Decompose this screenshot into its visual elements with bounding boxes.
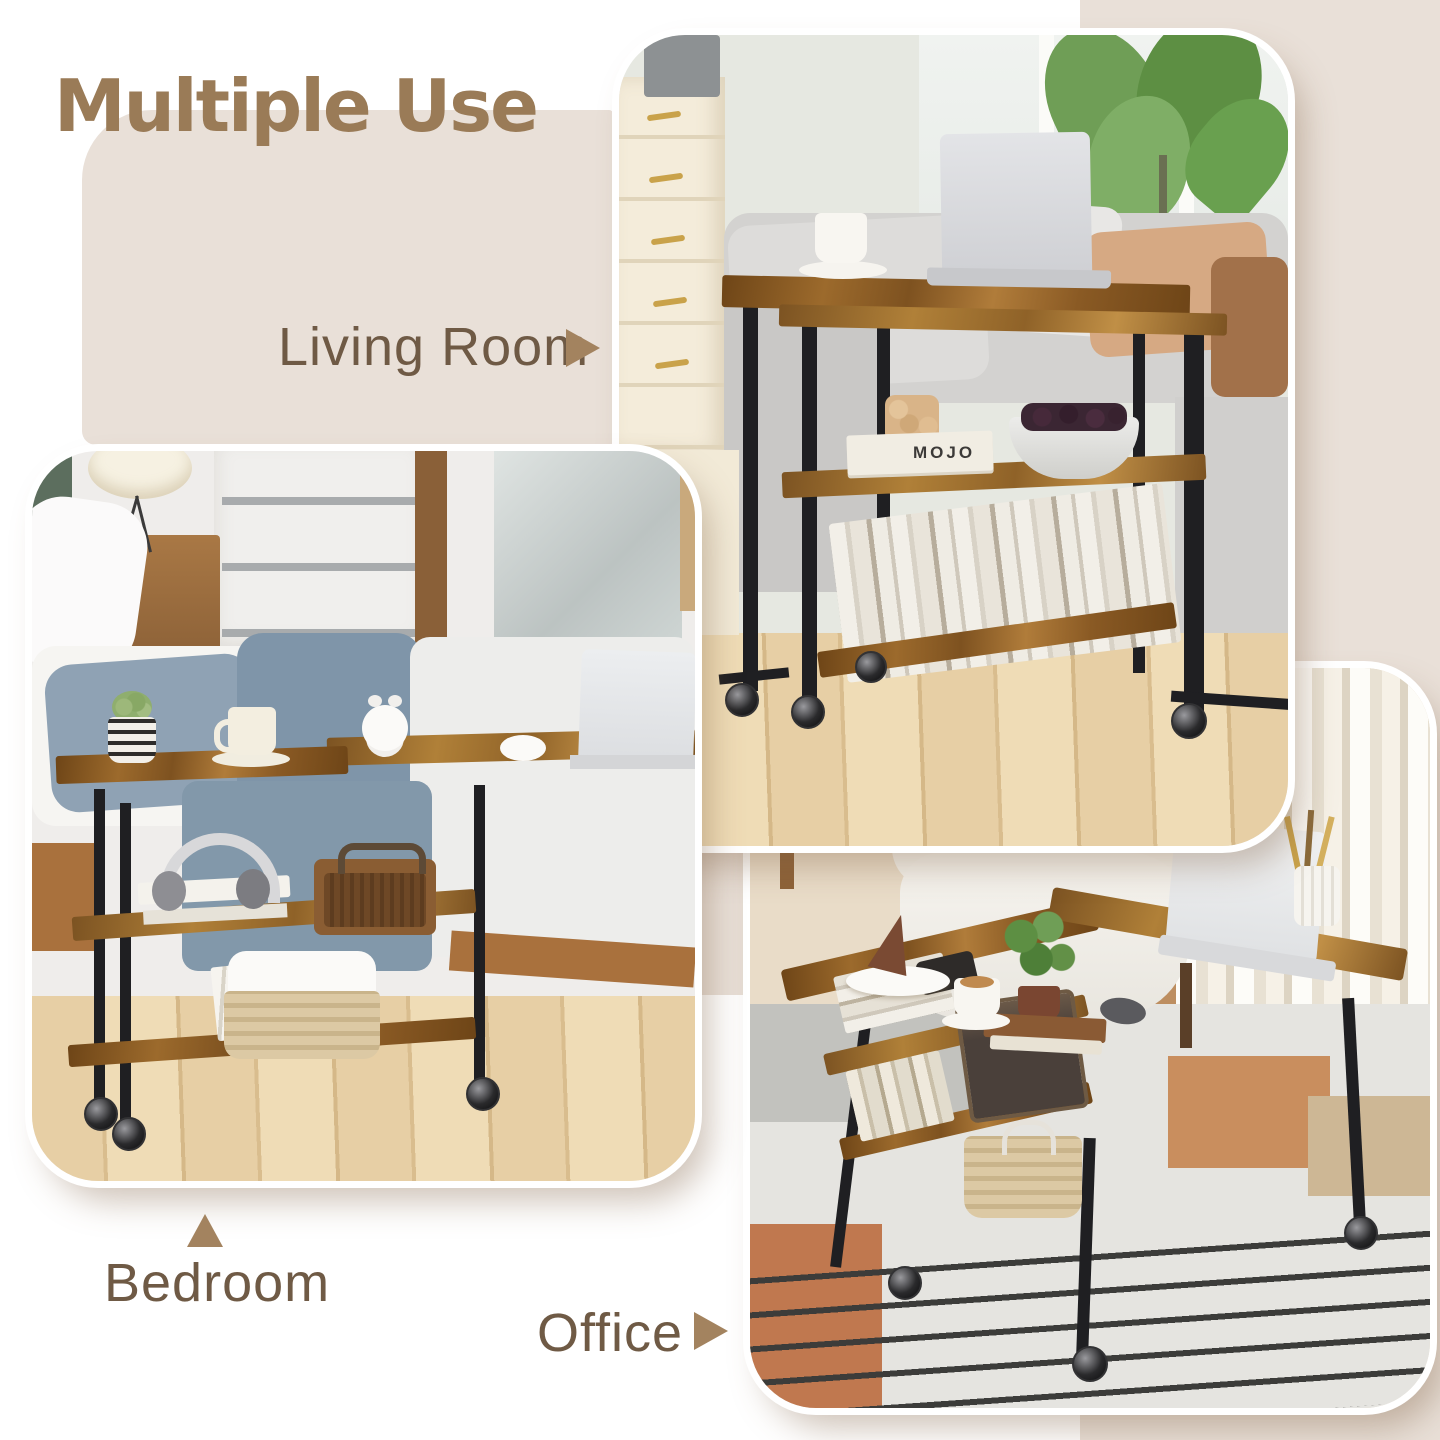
br-caster-wheel <box>466 1077 500 1111</box>
lr-saucer <box>799 261 887 279</box>
br-lamp-shade <box>88 451 192 499</box>
of-caster-wheel <box>888 1266 922 1300</box>
br-caster-wheel <box>112 1117 146 1151</box>
br-radio-handle <box>338 843 426 874</box>
label-bedroom: Bedroom <box>104 1252 330 1314</box>
of-desk-rear-leg <box>1180 963 1192 1048</box>
br-mug-handle <box>214 719 240 753</box>
of-caster-wheel <box>1072 1346 1108 1382</box>
lr-table-leg <box>802 313 817 701</box>
lr-laptop-screen <box>940 132 1092 277</box>
br-striped-planter <box>108 717 156 763</box>
lr-caster-wheel <box>791 695 825 729</box>
br-mirror <box>494 451 682 649</box>
arrow-up-icon-bedroom <box>187 1214 223 1247</box>
lr-mojo-book-title: MOJO <box>913 443 975 463</box>
br-alarm-bell <box>388 695 402 707</box>
of-latte-top <box>960 976 994 988</box>
of-caster-wheel <box>1344 1216 1378 1250</box>
br-alarm-bell <box>368 695 382 707</box>
br-mouse <box>500 735 546 761</box>
br-alarm-clock <box>362 705 408 751</box>
of-pencil-cup <box>1294 866 1340 926</box>
living-room-photo-panel: MOJO <box>619 35 1288 846</box>
bedroom-photo <box>32 451 695 1181</box>
br-white-cabinet <box>214 451 426 656</box>
lr-caster-wheel <box>1171 703 1207 739</box>
br-laptop-screen <box>578 649 695 763</box>
page-title: Multiple Use <box>54 64 537 148</box>
product-collage: Multiple Use <box>0 0 1440 1440</box>
br-mirror-frame <box>680 451 695 611</box>
of-plant-leaves <box>996 904 1080 996</box>
br-headphones-earcup <box>152 871 186 911</box>
br-basket <box>224 991 380 1059</box>
lr-coffee-cup <box>815 213 867 263</box>
label-living-room: Living Room <box>278 316 589 378</box>
lr-storage-box <box>644 35 720 97</box>
arrow-right-icon-office <box>694 1312 728 1350</box>
arrow-right-icon-living-room <box>566 329 600 367</box>
lr-laptop-deck <box>927 267 1111 288</box>
lr-caster-wheel <box>725 683 759 717</box>
of-basket-handle <box>1002 1120 1056 1155</box>
br-radio-face <box>324 873 426 927</box>
br-wardrobe-frame <box>415 451 447 649</box>
lr-table-leg <box>1184 325 1204 715</box>
br-headphones-earcup <box>236 869 270 909</box>
lr-table-leg <box>743 293 758 691</box>
br-table-leg <box>120 803 131 1121</box>
label-office: Office <box>537 1302 683 1364</box>
lr-dresser-drawer-lines <box>619 77 725 452</box>
of-rug-tan-block <box>1308 1096 1430 1196</box>
br-cabinet-bar <box>222 497 418 505</box>
br-cabinet-bar <box>222 563 418 571</box>
lr-caster-wheel <box>855 651 887 683</box>
living-room-photo: MOJO <box>619 35 1288 846</box>
br-laptop-deck <box>570 755 695 769</box>
bedroom-photo-panel <box>32 451 695 1181</box>
lr-cherries <box>1021 403 1127 431</box>
of-rug-rust-block <box>1168 1056 1330 1168</box>
beige-blob-top-left <box>82 110 613 445</box>
